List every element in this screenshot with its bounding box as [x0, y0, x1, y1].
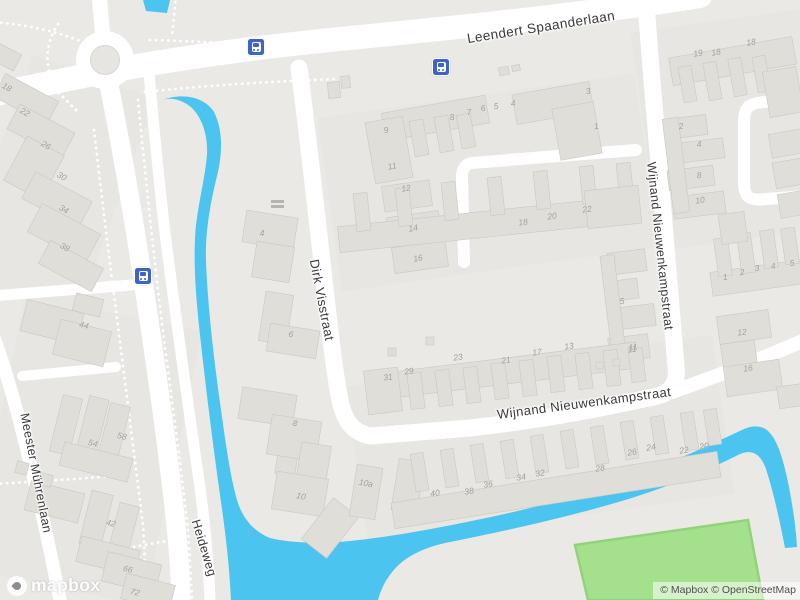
house-number-label: 5 [619, 296, 625, 307]
house-number-label: 17 [532, 346, 543, 357]
mapbox-logo[interactable]: mapbox [7, 575, 101, 596]
house-number-label: 29 [404, 365, 415, 376]
house-number-label: 40 [430, 487, 441, 498]
house-number-label: 31 [383, 371, 394, 382]
house-number-label: 1 [722, 272, 728, 283]
house-number-label: 12 [400, 182, 411, 193]
house-number-label: 10 [695, 194, 706, 205]
bus-stop-icon [432, 58, 450, 76]
house-number-label: 21 [501, 354, 512, 365]
house-number-label: 18 [745, 36, 756, 47]
mapbox-logo-icon [7, 576, 27, 596]
house-number-label: 38 [464, 485, 475, 496]
house-number-label: 2 [678, 121, 684, 132]
house-number-label: 26 [627, 446, 638, 457]
house-number-label: 36 [483, 478, 494, 489]
house-number-label: 24 [646, 441, 657, 452]
house-number-label: 3 [754, 263, 760, 274]
water-pond-north [143, 0, 170, 13]
house-number-label: 19 [692, 47, 703, 58]
house-number-label: 11 [387, 160, 397, 171]
house-number-label: 14 [407, 222, 418, 233]
house-number-label: 5 [789, 258, 795, 269]
house-number-label: 4 [260, 228, 265, 238]
attribution[interactable]: © Mapbox © OpenStreetMap [653, 582, 800, 599]
house-number-label: 34 [516, 471, 527, 482]
house-number-label: 22 [679, 444, 690, 455]
house-number-label: 10 [295, 490, 306, 501]
house-number-label: 8 [696, 170, 702, 181]
house-number-label: 16 [743, 362, 754, 373]
house-number-label: 13 [564, 340, 575, 351]
house-number-label: 16 [412, 252, 423, 263]
house-number-label: 22 [582, 203, 593, 214]
house-number-label: 12 [737, 326, 748, 337]
house-number-label: 20 [547, 210, 558, 221]
house-number-label: 4 [696, 139, 702, 150]
mapbox-logo-text: mapbox [31, 575, 101, 596]
house-number-label: 4 [770, 261, 776, 272]
map-canvas[interactable]: Leendert SpaanderlaanDirk VisstraatWijna… [0, 0, 800, 600]
house-number-label: 20 [699, 440, 710, 451]
bus-stop-icon [247, 38, 265, 56]
bus-stop-icon [134, 267, 152, 285]
house-number-label: 11 [627, 343, 637, 354]
map-tiles [0, 0, 800, 600]
house-number-label: 23 [453, 351, 464, 362]
house-number-label: 32 [535, 467, 546, 478]
house-number-label: 18 [710, 46, 721, 57]
roundabout [76, 31, 134, 89]
house-number-label: 18 [518, 216, 529, 227]
house-number-label: 28 [595, 462, 606, 473]
house-number-label: 2 [739, 267, 745, 278]
